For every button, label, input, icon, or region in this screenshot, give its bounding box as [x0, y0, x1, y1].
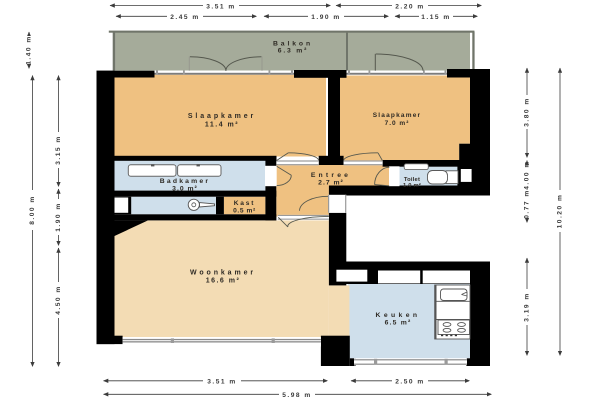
svg-text:0.5 m²: 0.5 m²	[233, 208, 256, 215]
svg-text:Slaapkamer: Slaapkamer	[373, 112, 422, 119]
svg-text:1.15 m: 1.15 m	[421, 14, 451, 21]
svg-text:3.15 m: 3.15 m	[55, 135, 62, 165]
svg-text:Woonkamer: Woonkamer	[190, 270, 256, 277]
svg-text:0.77 m: 0.77 m	[524, 189, 531, 219]
svg-text:2.45 m: 2.45 m	[170, 14, 200, 21]
svg-text:10.20 m: 10.20 m	[557, 194, 564, 229]
svg-text:Slaapkamer: Slaapkamer	[188, 113, 256, 120]
svg-text:8.00 m: 8.00 m	[29, 195, 36, 225]
svg-text:3.51 m: 3.51 m	[206, 3, 236, 10]
svg-text:Kast: Kast	[234, 200, 256, 207]
svg-text:Keuken: Keuken	[376, 312, 421, 319]
svg-text:1.0 m²: 1.0 m²	[403, 182, 421, 189]
svg-text:1.90 m: 1.90 m	[55, 202, 62, 232]
svg-text:7.0 m²: 7.0 m²	[385, 120, 410, 127]
svg-text:3.19 m: 3.19 m	[524, 292, 531, 322]
svg-text:1.90 m: 1.90 m	[311, 14, 341, 21]
svg-text:1.40 m: 1.40 m	[26, 35, 33, 65]
svg-text:4.50 m: 4.50 m	[55, 285, 62, 315]
svg-text:3.51 m: 3.51 m	[207, 379, 237, 386]
svg-text:6.3 m²: 6.3 m²	[278, 47, 308, 54]
svg-text:2.7 m²: 2.7 m²	[318, 180, 344, 187]
svg-text:Entree: Entree	[311, 172, 351, 179]
svg-text:3.80 m: 3.80 m	[524, 97, 531, 127]
svg-text:16.6 m²: 16.6 m²	[206, 278, 241, 285]
svg-text:6.5 m²: 6.5 m²	[385, 320, 412, 327]
svg-text:2.20 m: 2.20 m	[395, 3, 425, 10]
svg-text:11.4 m²: 11.4 m²	[205, 122, 239, 129]
svg-text:5.98 m: 5.98 m	[282, 392, 312, 399]
svg-text:3.0 m²: 3.0 m²	[172, 186, 198, 193]
svg-text:Toilet: Toilet	[404, 177, 420, 183]
svg-text:Badkamer: Badkamer	[160, 178, 210, 185]
svg-text:4.00 m: 4.00 m	[524, 160, 531, 190]
svg-text:2.50 m: 2.50 m	[395, 379, 425, 386]
